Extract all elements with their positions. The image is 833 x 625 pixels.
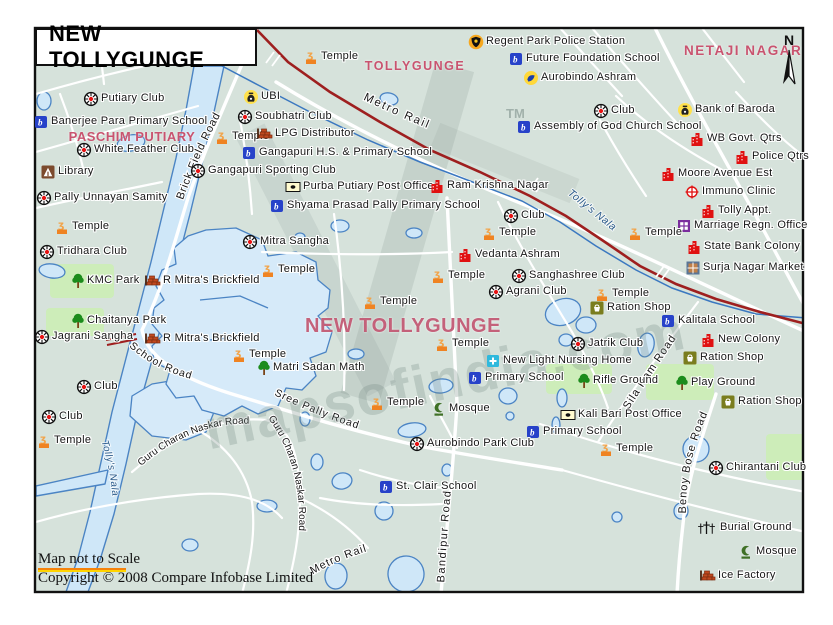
map-page: Brick Field RoadSchool RoadSree Pally Ro… <box>0 0 833 625</box>
map-canvas: Brick Field RoadSchool RoadSree Pally Ro… <box>0 0 833 625</box>
